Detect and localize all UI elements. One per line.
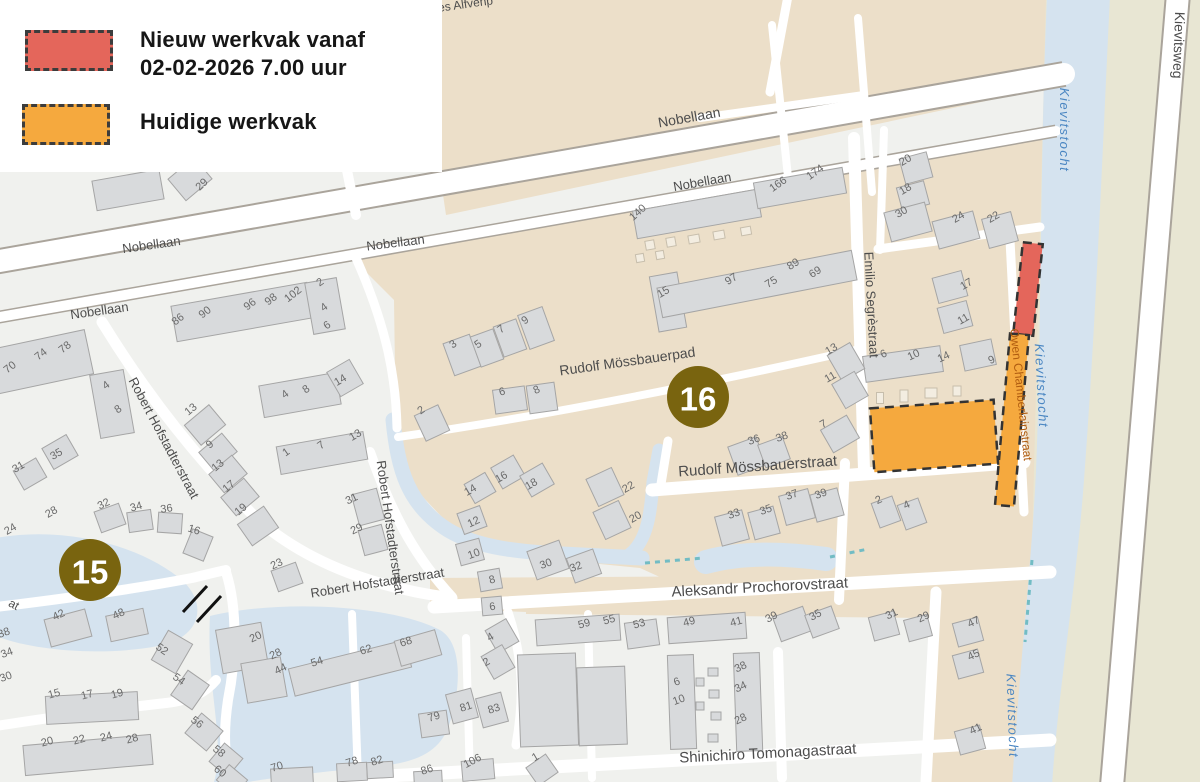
water-name-label: Kievitstocht — [1004, 673, 1022, 758]
shed — [953, 386, 961, 396]
water-name-label: Kievitstocht — [1057, 88, 1072, 172]
road — [880, 130, 884, 250]
building — [708, 734, 718, 742]
shed — [655, 250, 664, 259]
building — [696, 678, 704, 686]
legend-new-work-line2: 02-02-2026 7.00 uur — [140, 54, 365, 82]
shed — [925, 388, 937, 398]
marker-number-label: 16 — [680, 381, 717, 418]
shed — [900, 390, 908, 402]
shed — [688, 234, 700, 244]
shed — [645, 240, 655, 250]
building — [708, 668, 718, 676]
building — [711, 712, 721, 720]
building — [709, 690, 719, 698]
shed — [877, 393, 884, 404]
shed — [666, 237, 676, 247]
legend: Nieuw werkvak vanaf 02-02-2026 7.00 uur … — [0, 0, 442, 172]
building — [696, 702, 704, 710]
current-work-area-swatch — [22, 104, 110, 145]
new-work-area-swatch — [25, 30, 113, 71]
canal — [706, 555, 826, 563]
marker-number-label: 15 — [72, 554, 109, 591]
legend-current-work-label: Huidige werkvak — [140, 108, 317, 136]
building — [517, 653, 578, 747]
legend-new-work-label: Nieuw werkvak vanaf 02-02-2026 7.00 uur — [140, 26, 365, 82]
current-work-area-overlay — [870, 400, 998, 472]
house-number-label: 36 — [160, 502, 174, 516]
shed — [713, 230, 725, 240]
shed — [740, 226, 751, 236]
legend-new-work-line1: Nieuw werkvak vanaf — [140, 26, 365, 54]
roadworks-map-notice: NobellaanNobellaanNobellaanNobellaanNobe… — [0, 0, 1200, 782]
building — [577, 666, 628, 746]
map-marker: 16 — [667, 366, 729, 428]
shed — [635, 253, 644, 262]
street-name-label: Kievitsweg — [1170, 11, 1188, 78]
map-marker: 15 — [59, 539, 121, 601]
legend-current-work-line1: Huidige werkvak — [140, 108, 317, 136]
